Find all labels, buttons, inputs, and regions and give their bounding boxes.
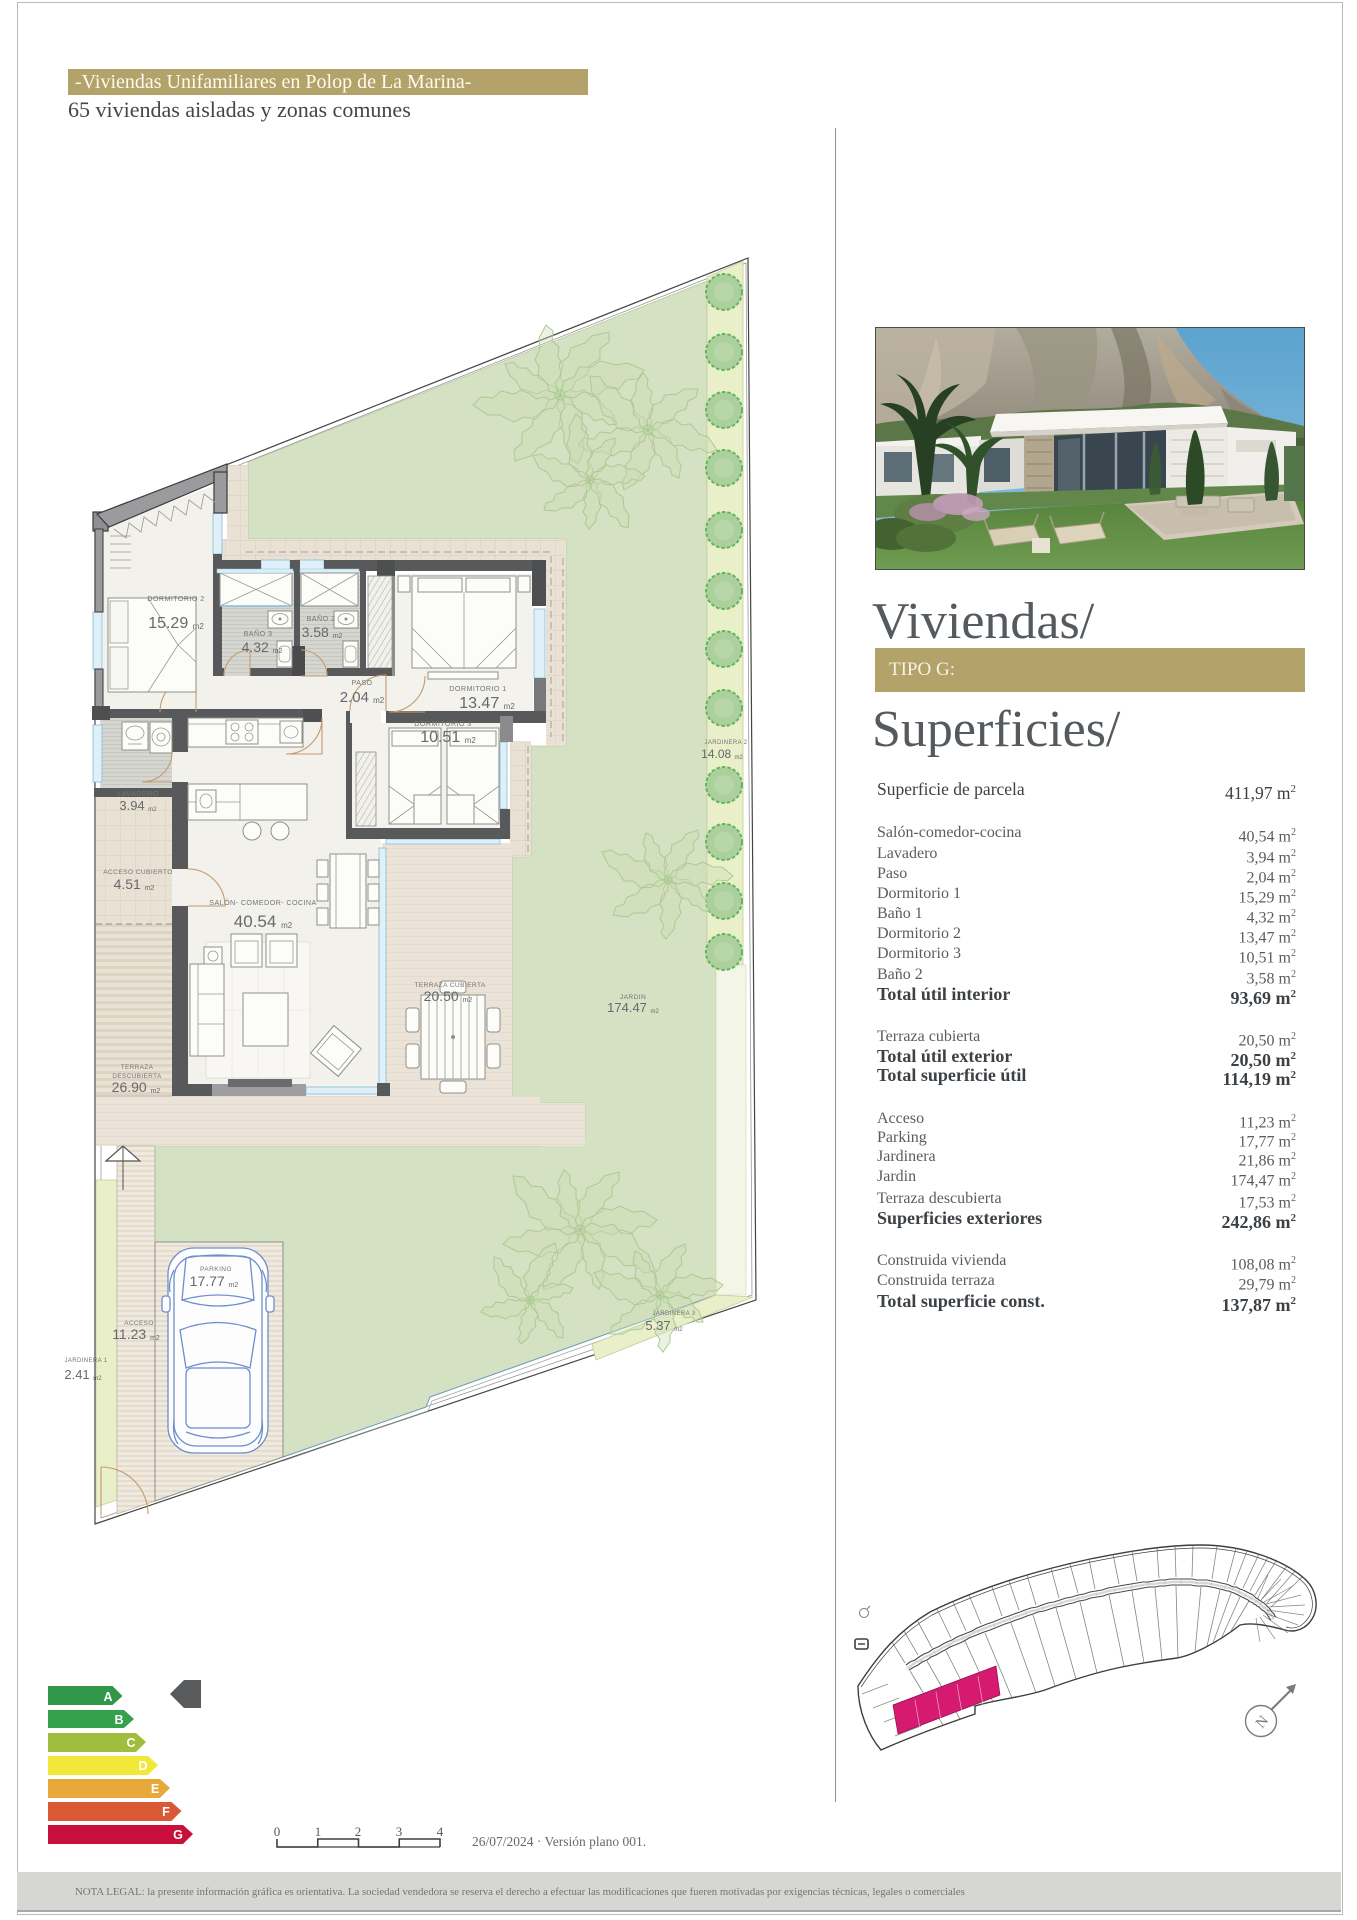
svg-text:SALÓN- COMEDOR- COCINA: SALÓN- COMEDOR- COCINA <box>209 898 316 907</box>
svg-text:4: 4 <box>437 1824 444 1839</box>
svg-text:JARDINERA 3: JARDINERA 3 <box>652 1311 695 1317</box>
svg-text:3: 3 <box>396 1824 403 1839</box>
svg-text:JARDINERA 2: JARDINERA 2 <box>704 740 747 746</box>
svg-text:DORMITORIO 2: DORMITORIO 2 <box>147 594 204 603</box>
svg-text:BAÑO 2: BAÑO 2 <box>307 614 336 623</box>
svg-text:DORMITORIO 1: DORMITORIO 1 <box>449 684 506 693</box>
svg-text:C: C <box>126 1736 135 1750</box>
svg-text:1: 1 <box>315 1824 322 1839</box>
svg-text:G: G <box>173 1828 183 1842</box>
svg-text:JARDINERA 1: JARDINERA 1 <box>64 1358 107 1364</box>
svg-text:PARKING: PARKING <box>200 1266 232 1273</box>
svg-text:DORMITORIO 3: DORMITORIO 3 <box>414 719 471 728</box>
svg-text:BAÑO 3: BAÑO 3 <box>244 629 273 638</box>
svg-text:TERRAZA: TERRAZA <box>121 1064 154 1071</box>
svg-text:ACCESO CUBIERTO: ACCESO CUBIERTO <box>103 869 173 876</box>
svg-text:A: A <box>103 1690 112 1704</box>
svg-text:E: E <box>151 1782 159 1796</box>
svg-text:0: 0 <box>274 1824 281 1839</box>
svg-text:26/07/2024 · Versión plano 001: 26/07/2024 · Versión plano 001. <box>472 1834 646 1849</box>
svg-text:LAVADERO: LAVADERO <box>117 789 158 798</box>
svg-text:2: 2 <box>355 1824 362 1839</box>
svg-text:B: B <box>114 1713 123 1727</box>
svg-text:D: D <box>138 1759 147 1773</box>
svg-text:N: N <box>1253 1713 1272 1732</box>
svg-text:F: F <box>162 1805 170 1819</box>
svg-text:PASO: PASO <box>351 678 372 687</box>
